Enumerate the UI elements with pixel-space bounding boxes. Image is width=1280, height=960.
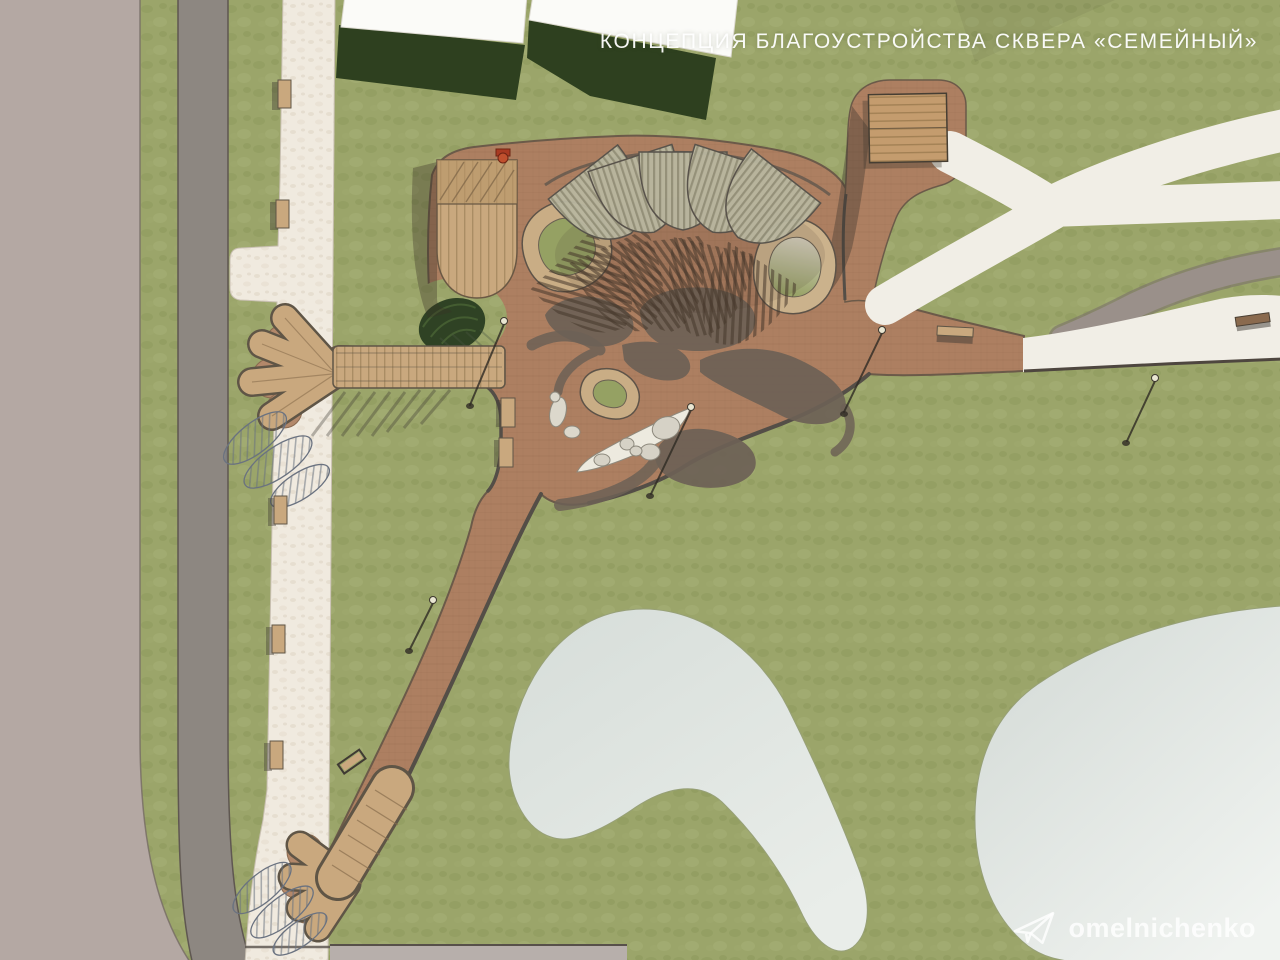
- landscape-plan-canvas: [0, 0, 1280, 960]
- paper-plane-icon: [1012, 910, 1056, 946]
- watermark-label: omelnichenko: [1068, 913, 1256, 944]
- bench: [266, 625, 285, 655]
- bench: [264, 741, 283, 771]
- playground-deck: [437, 149, 517, 298]
- bench: [270, 200, 289, 230]
- bench: [268, 496, 287, 526]
- white-path-east: [1050, 200, 1280, 208]
- bench: [494, 438, 513, 467]
- bench: [496, 398, 515, 427]
- pavilion-roof: [862, 93, 947, 168]
- bench: [937, 326, 974, 344]
- watermark: omelnichenko: [1012, 910, 1256, 946]
- site-plan-rendering: КОНЦЕПЦИЯ БЛАГОУСТРОЙСТВА СКВЕРА «СЕМЕЙН…: [0, 0, 1280, 960]
- page-title: КОНЦЕПЦИЯ БЛАГОУСТРОЙСТВА СКВЕРА «СЕМЕЙН…: [600, 30, 1258, 54]
- bench: [272, 80, 291, 110]
